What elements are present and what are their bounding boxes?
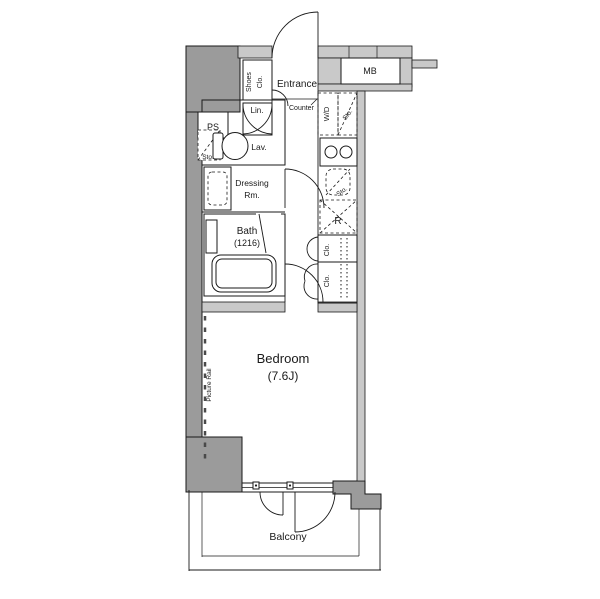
stove-unit [320, 138, 357, 166]
floor-plan-svg: MB Shoes Clo. Entrance Counter PS Sto. L… [0, 0, 600, 599]
bath-door-leaf [259, 214, 266, 253]
kitchen-storage-top-label: Sto. [342, 108, 355, 122]
wall-step-bottom-right [333, 481, 381, 509]
wall-mb-bottom [318, 84, 412, 91]
bedroom: Bedroom (7.6J) Picture Rail [205, 264, 323, 460]
dressing-label-2: Rm. [244, 190, 260, 200]
entrance-area: Shoes Clo. Entrance Counter [243, 12, 318, 112]
wall-entrance-kitchen [318, 58, 341, 84]
dressing-room: Dressing Rm. [202, 165, 324, 212]
wall-neighbor-bottom-left [186, 437, 242, 492]
bedroom-top-wall-left [202, 302, 285, 312]
entrance-door-swing-arc [272, 12, 318, 58]
closets: Clo. Clo. [304, 235, 357, 303]
toilet-bowl [222, 133, 248, 160]
closet-lower-bifold-door [304, 264, 318, 299]
bath-counter [206, 220, 217, 253]
bath-label-2: (1216) [234, 238, 260, 248]
window-hinge-left-dot [255, 484, 257, 486]
balcony-door-left-arc [260, 492, 283, 515]
toilet-storage-label: Sto. [202, 154, 214, 161]
picture-rail-label: Picture Rail [206, 368, 213, 402]
shoe-cabinet-door-arc [272, 90, 288, 106]
sink-storage-label: Sto. [335, 185, 349, 197]
bath-room: Bath (1216) [204, 214, 285, 296]
wall-arm-right [412, 60, 437, 68]
top-wall-left-segment [238, 46, 272, 58]
counter-label: Counter [289, 105, 315, 112]
lavatory-label: Lav. [251, 142, 266, 152]
balcony-windows [242, 482, 335, 532]
linen-label: Lin. [251, 106, 264, 115]
bedroom-label-2: (7.6J) [268, 369, 299, 383]
wall-left [186, 112, 202, 437]
top-wall-right-segment [318, 46, 412, 58]
refrigerator-label: R [334, 216, 341, 227]
entrance-label: Entrance [277, 79, 317, 90]
bathtub-outer [212, 255, 276, 292]
meter-box-label: MB [363, 66, 377, 76]
balcony-label: Balcony [269, 531, 307, 543]
balcony-door-right-arc [295, 492, 335, 532]
washer-dryer-label: W/D [322, 106, 331, 121]
closet-upper-label: Clo. [324, 244, 331, 257]
dressing-label-1: Dressing [235, 178, 269, 188]
kitchen: W/D Sto. Sto. R [318, 91, 357, 235]
closet-lower-label: Clo. [324, 275, 331, 288]
bath-label-1: Bath [237, 226, 258, 237]
meter-box: MB [341, 58, 400, 84]
wall-mb-right [400, 58, 412, 87]
counter-leader-line [311, 99, 317, 105]
shoes-closet-label-2: Clo. [257, 76, 264, 89]
wall-right [357, 91, 365, 481]
bedroom-label-1: Bedroom [257, 351, 310, 366]
floor-plan-page: MB Shoes Clo. Entrance Counter PS Sto. L… [0, 0, 600, 599]
shoes-closet-label-1: Shoes [246, 72, 253, 92]
wall-neighbor-top-left [186, 46, 240, 112]
window-hinge-right-dot [289, 484, 291, 486]
closet-upper-bifold-door [307, 237, 318, 261]
